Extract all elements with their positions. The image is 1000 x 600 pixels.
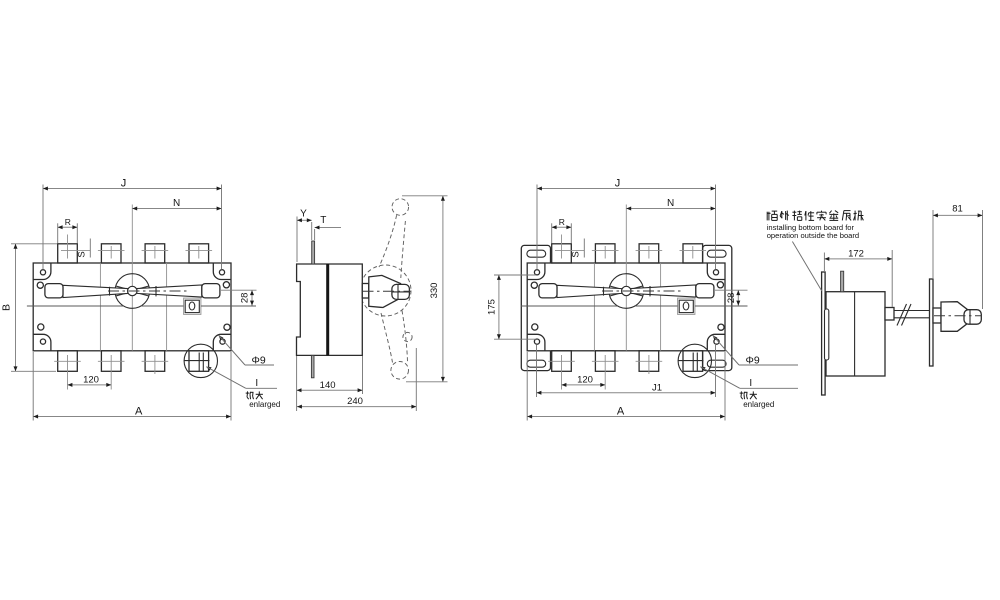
svg-text:I: I — [255, 378, 258, 389]
svg-text:120: 120 — [83, 375, 99, 386]
svg-text:enlarged: enlarged — [249, 400, 280, 409]
svg-text:A: A — [617, 405, 625, 417]
svg-text:J: J — [615, 177, 621, 189]
svg-text:81: 81 — [952, 204, 963, 215]
svg-text:N: N — [667, 198, 674, 209]
svg-text:28: 28 — [240, 293, 251, 304]
svg-text:330: 330 — [429, 283, 440, 299]
svg-text:I: I — [749, 378, 752, 389]
svg-text:R: R — [65, 217, 71, 227]
svg-text:172: 172 — [848, 248, 864, 259]
svg-text:28: 28 — [726, 293, 737, 304]
svg-text:operation outside the board: operation outside the board — [767, 231, 859, 240]
svg-text:120: 120 — [577, 375, 593, 386]
svg-text:N: N — [173, 198, 180, 209]
svg-text:S: S — [570, 251, 581, 257]
svg-text:J1: J1 — [652, 382, 662, 393]
svg-text:175: 175 — [486, 299, 497, 315]
svg-text:enlarged: enlarged — [743, 400, 774, 409]
svg-text:S: S — [76, 251, 87, 257]
svg-text:140: 140 — [320, 380, 336, 391]
svg-text:T: T — [320, 215, 326, 226]
svg-text:J: J — [121, 177, 127, 189]
svg-text:A: A — [135, 405, 143, 417]
svg-text:Φ9: Φ9 — [746, 354, 760, 366]
svg-text:Y: Y — [300, 208, 307, 219]
svg-text:Φ9: Φ9 — [252, 354, 266, 366]
svg-text:B: B — [1, 304, 13, 311]
svg-text:240: 240 — [347, 396, 363, 407]
svg-text:R: R — [559, 217, 565, 227]
